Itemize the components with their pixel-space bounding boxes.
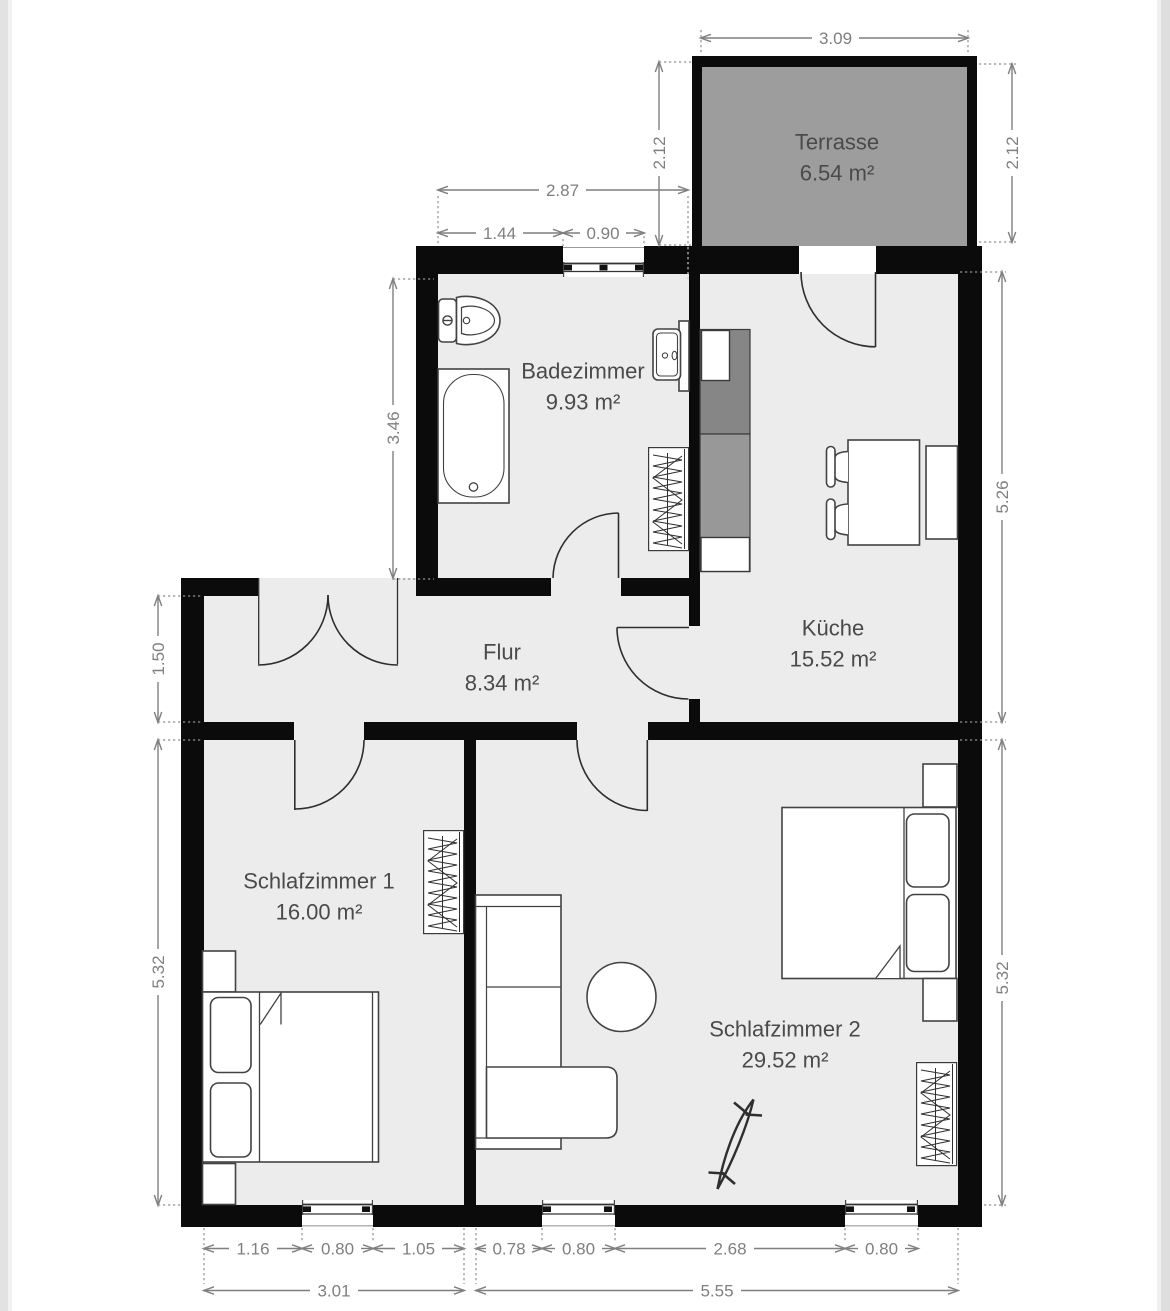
svg-text:3.09: 3.09 bbox=[819, 29, 852, 48]
svg-text:Schlafzimmer 1: Schlafzimmer 1 bbox=[243, 869, 395, 894]
svg-text:16.00 m²: 16.00 m² bbox=[276, 900, 363, 925]
svg-text:Küche: Küche bbox=[802, 616, 864, 641]
svg-text:1.44: 1.44 bbox=[483, 224, 516, 243]
svg-text:1.50: 1.50 bbox=[149, 642, 168, 675]
svg-text:0.90: 0.90 bbox=[586, 224, 619, 243]
svg-text:3.46: 3.46 bbox=[384, 411, 403, 444]
svg-text:0.80: 0.80 bbox=[562, 1240, 595, 1259]
svg-text:9.93 m²: 9.93 m² bbox=[546, 390, 621, 415]
svg-text:5.32: 5.32 bbox=[149, 955, 168, 988]
svg-text:3.01: 3.01 bbox=[317, 1282, 350, 1301]
svg-text:Schlafzimmer 2: Schlafzimmer 2 bbox=[709, 1017, 861, 1042]
svg-text:1.05: 1.05 bbox=[402, 1240, 435, 1259]
svg-text:0.78: 0.78 bbox=[492, 1240, 525, 1259]
svg-text:2.87: 2.87 bbox=[546, 181, 579, 200]
svg-text:1.16: 1.16 bbox=[236, 1240, 269, 1259]
svg-text:Badezimmer: Badezimmer bbox=[521, 359, 644, 384]
svg-text:29.52 m²: 29.52 m² bbox=[742, 1048, 829, 1073]
svg-text:0.80: 0.80 bbox=[865, 1240, 898, 1259]
svg-text:6.54 m²: 6.54 m² bbox=[800, 161, 875, 186]
svg-text:2.12: 2.12 bbox=[1003, 136, 1022, 169]
svg-text:15.52 m²: 15.52 m² bbox=[790, 647, 877, 672]
svg-text:8.34 m²: 8.34 m² bbox=[465, 671, 540, 696]
svg-text:5.32: 5.32 bbox=[993, 961, 1012, 994]
svg-text:Flur: Flur bbox=[483, 640, 521, 665]
svg-text:Terrasse: Terrasse bbox=[795, 130, 879, 155]
svg-text:0.80: 0.80 bbox=[321, 1240, 354, 1259]
svg-text:2.12: 2.12 bbox=[650, 136, 669, 169]
svg-text:2.68: 2.68 bbox=[713, 1240, 746, 1259]
svg-text:5.55: 5.55 bbox=[700, 1282, 733, 1301]
svg-text:5.26: 5.26 bbox=[993, 480, 1012, 513]
